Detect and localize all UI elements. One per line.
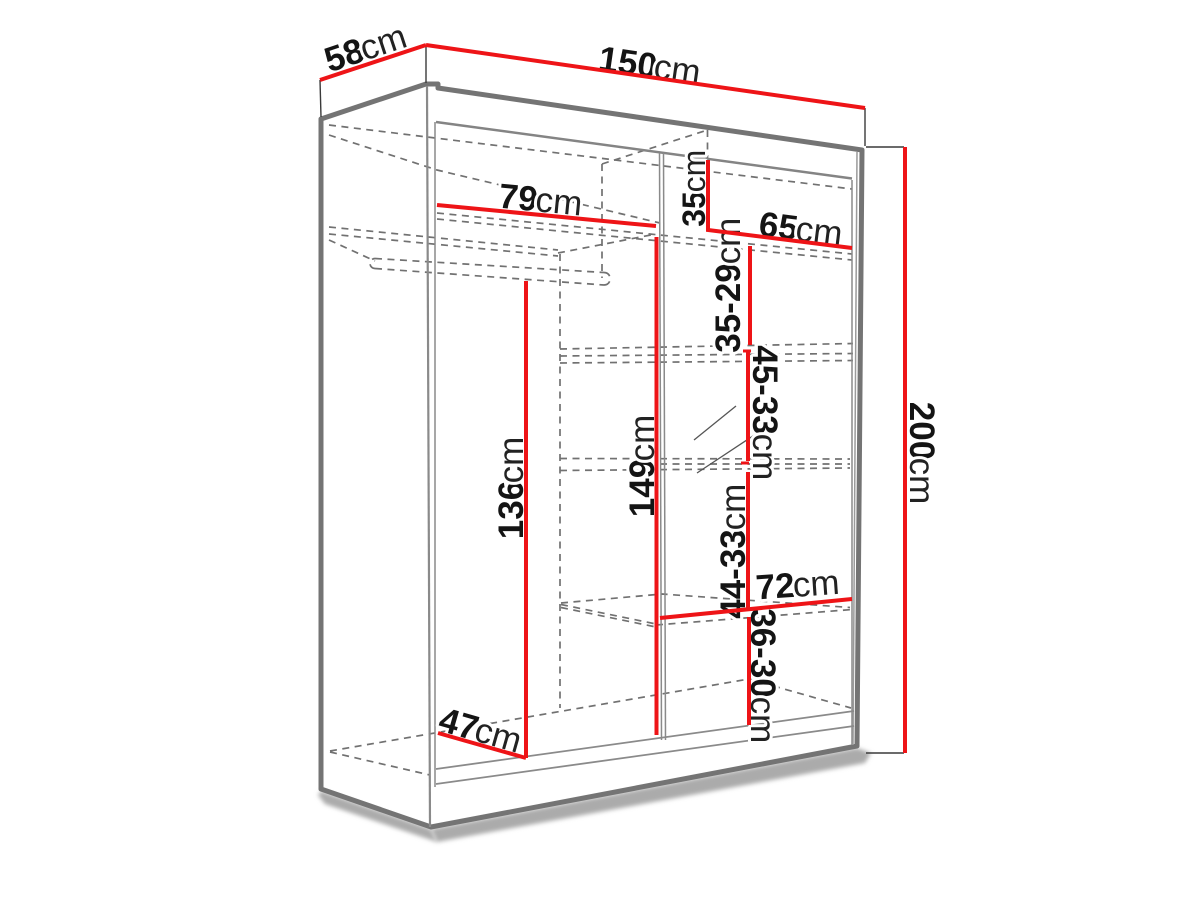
svg-text:cm: cm xyxy=(709,218,748,265)
svg-text:200: 200 xyxy=(902,402,941,460)
svg-text:cm: cm xyxy=(745,434,784,481)
svg-text:35-29: 35-29 xyxy=(709,263,748,353)
svg-text:72: 72 xyxy=(754,566,796,608)
svg-text:cm: cm xyxy=(792,563,841,605)
svg-text:cm: cm xyxy=(902,458,941,505)
svg-text:45-33: 45-33 xyxy=(745,345,784,435)
